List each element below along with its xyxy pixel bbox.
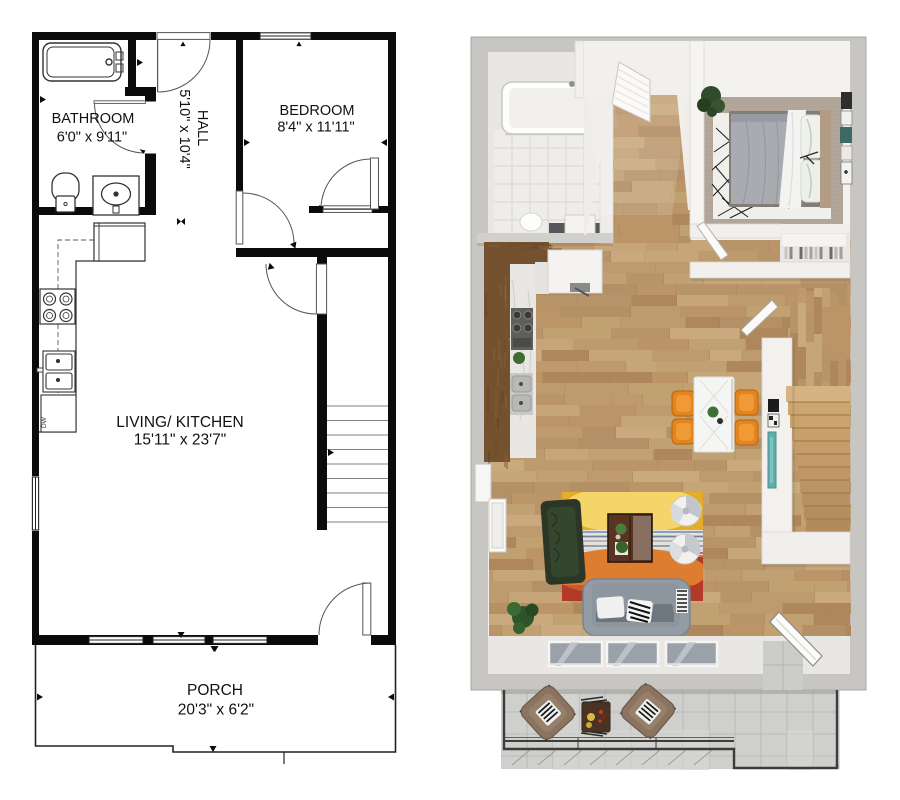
svg-text:8'4" x 11'11": 8'4" x 11'11"	[277, 120, 354, 136]
svg-text:BATHROOM: BATHROOM	[52, 111, 135, 127]
svg-text:DW: DW	[41, 416, 48, 428]
svg-text:20'3" x 6'2": 20'3" x 6'2"	[178, 702, 254, 719]
svg-text:15'11" x 23'7": 15'11" x 23'7"	[134, 432, 226, 449]
svg-text:PORCH: PORCH	[187, 682, 243, 699]
svg-text:5'10" x 10'4": 5'10" x 10'4"	[176, 89, 192, 169]
svg-text:6'0" x 9'11": 6'0" x 9'11"	[57, 130, 127, 146]
svg-text:HALL: HALL	[194, 110, 210, 146]
svg-text:BEDROOM: BEDROOM	[280, 103, 355, 119]
svg-text:LIVING/ KITCHEN: LIVING/ KITCHEN	[116, 414, 243, 431]
